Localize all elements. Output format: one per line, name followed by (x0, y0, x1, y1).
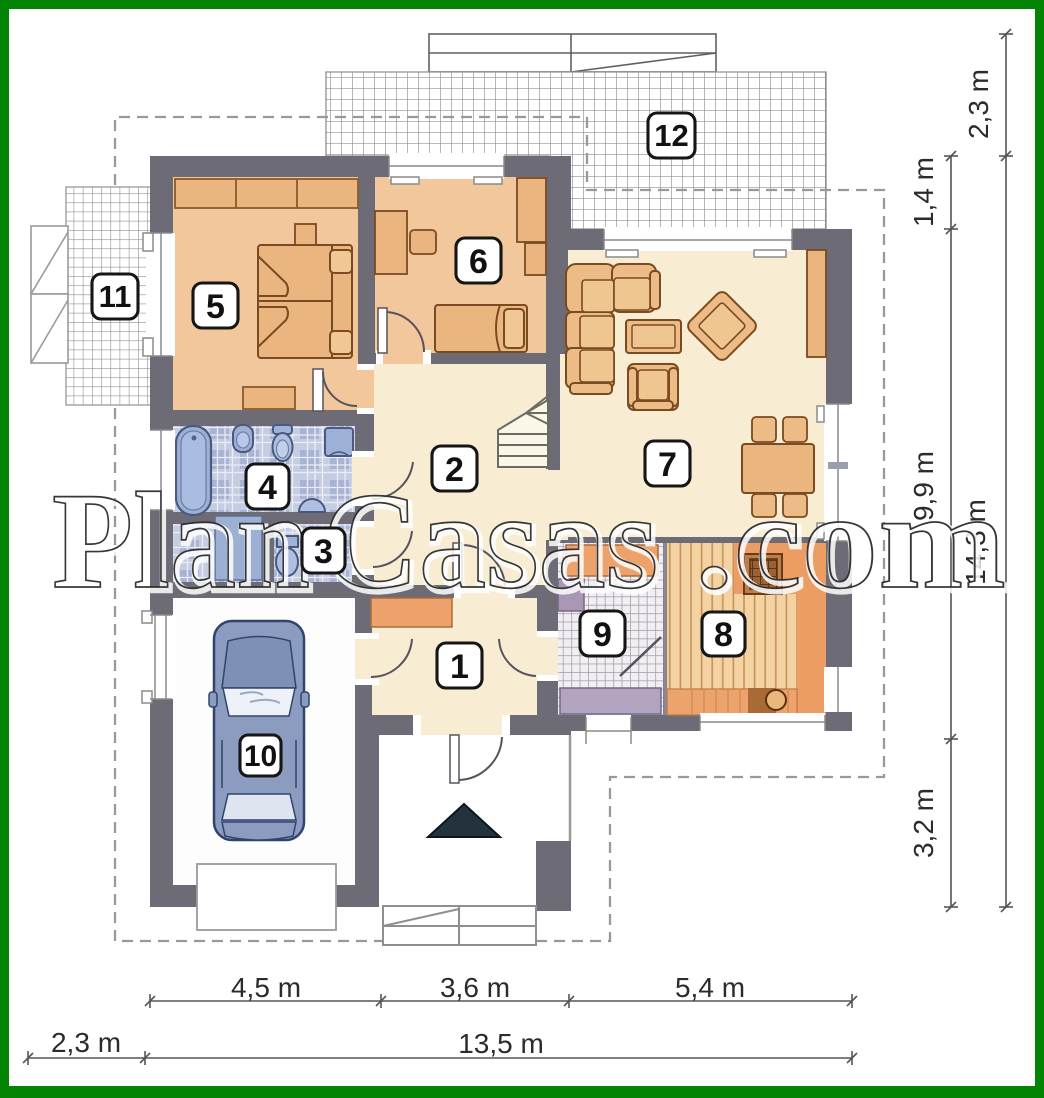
svg-text:Casas: Casas (322, 464, 658, 617)
svg-text:13,5 m: 13,5 m (458, 1028, 544, 1059)
svg-text:10: 10 (244, 740, 277, 773)
svg-text:7: 7 (658, 446, 677, 484)
svg-text:6: 6 (469, 243, 488, 281)
svg-text:3: 3 (314, 533, 333, 571)
svg-text:5: 5 (206, 288, 225, 326)
svg-text:1: 1 (450, 648, 469, 686)
svg-text:11: 11 (99, 279, 132, 314)
svg-text:3,6 m: 3,6 m (440, 972, 510, 1003)
svg-text:3,2 m: 3,2 m (908, 788, 939, 858)
svg-text:8: 8 (714, 616, 733, 654)
svg-text:.com: .com (695, 464, 1006, 617)
svg-text:5,4 m: 5,4 m (675, 972, 745, 1003)
svg-text:1,4 m: 1,4 m (908, 157, 939, 227)
svg-text:2: 2 (445, 451, 464, 489)
svg-text:2,3 m: 2,3 m (51, 1027, 121, 1058)
svg-text:12: 12 (654, 118, 688, 153)
svg-text:9: 9 (593, 616, 612, 654)
svg-text:4,5 m: 4,5 m (231, 972, 301, 1003)
svg-text:2,3 m: 2,3 m (963, 69, 994, 139)
svg-text:4: 4 (258, 469, 277, 507)
